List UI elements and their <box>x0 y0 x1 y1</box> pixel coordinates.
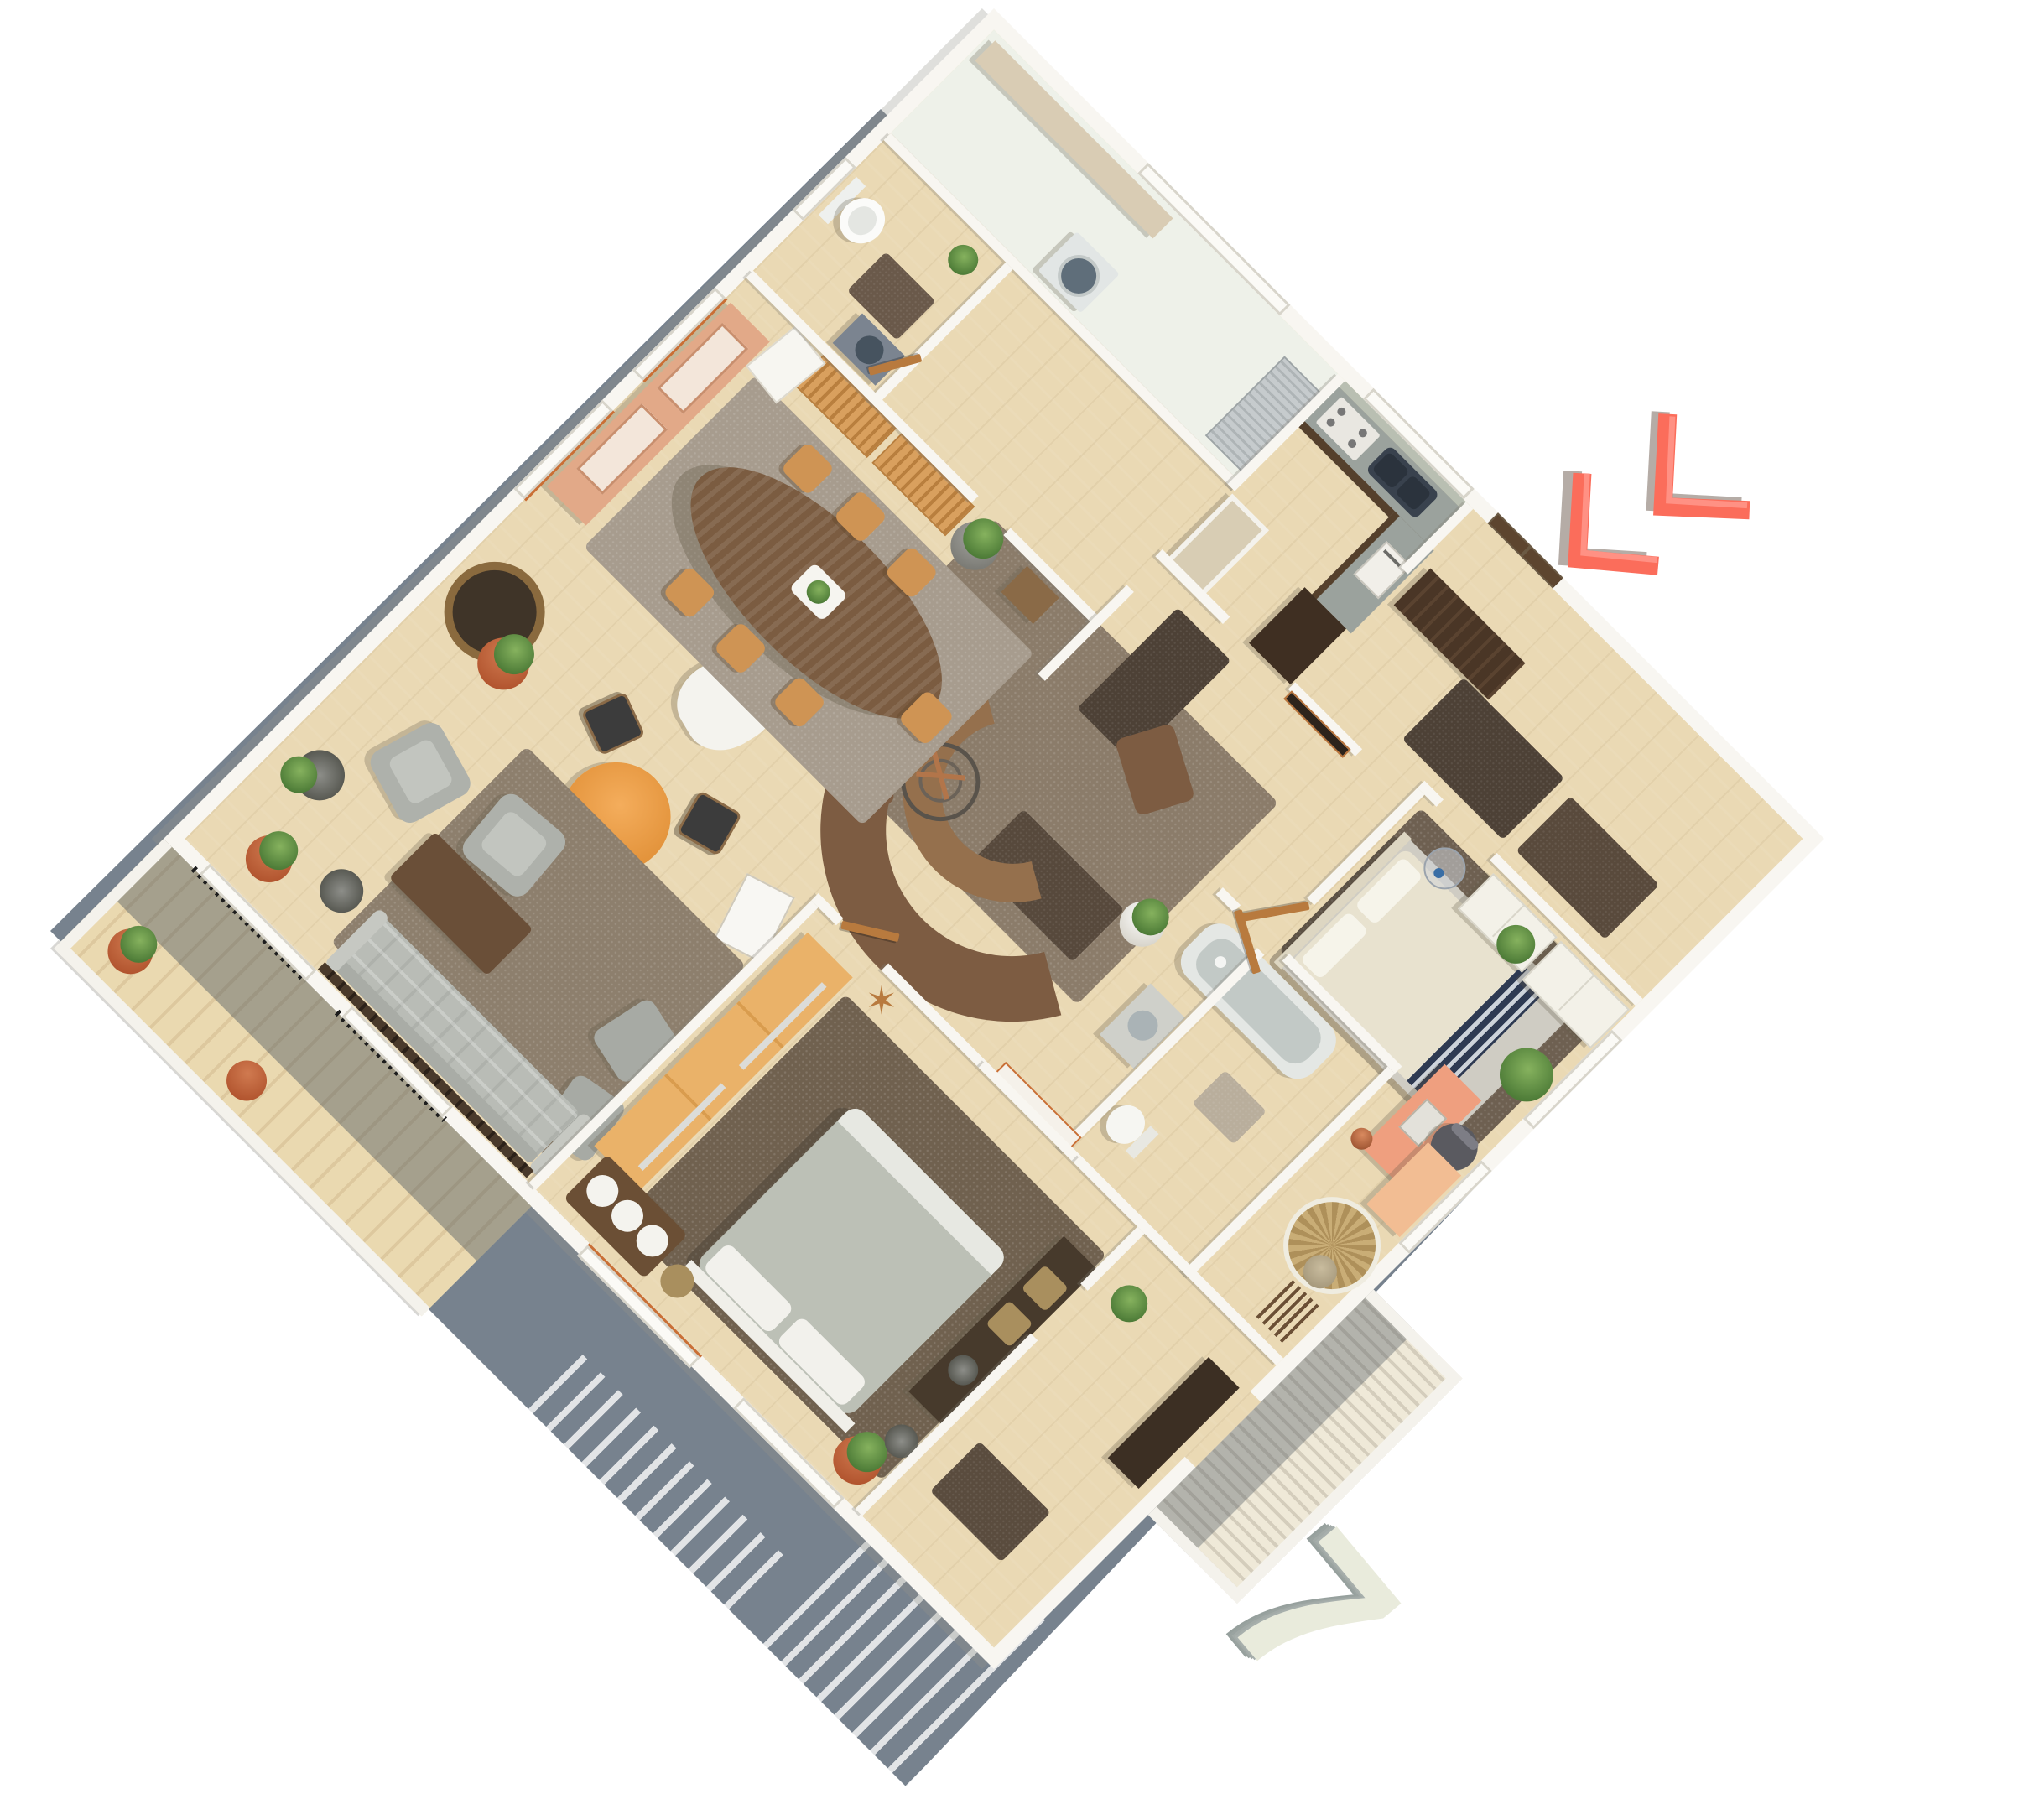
pendant-bulb <box>1432 866 1446 881</box>
oven-handle <box>1383 549 1401 567</box>
potted-plant <box>1103 1277 1155 1329</box>
armchair-seat <box>478 809 549 879</box>
burner <box>1346 438 1358 450</box>
small-plant <box>942 238 985 281</box>
black-chair <box>580 691 645 756</box>
black-chair <box>676 790 742 856</box>
drawer-line <box>1558 975 1594 1011</box>
toilet-bowl <box>842 200 882 241</box>
coat-rack <box>1256 1280 1319 1343</box>
armchair-seat <box>387 737 455 806</box>
floor-plan-rendering: ✶ <box>0 0 2034 1820</box>
bath-mat <box>1192 1070 1267 1145</box>
burner <box>1325 417 1337 429</box>
basket <box>1022 1265 1069 1313</box>
centerpiece-plant <box>802 575 835 609</box>
centerpiece-tray <box>788 562 848 621</box>
armchair <box>366 718 476 828</box>
bath-sink <box>1121 1004 1164 1047</box>
hall-mat <box>930 1441 1051 1562</box>
burner <box>1335 406 1347 418</box>
burner <box>1357 427 1369 439</box>
